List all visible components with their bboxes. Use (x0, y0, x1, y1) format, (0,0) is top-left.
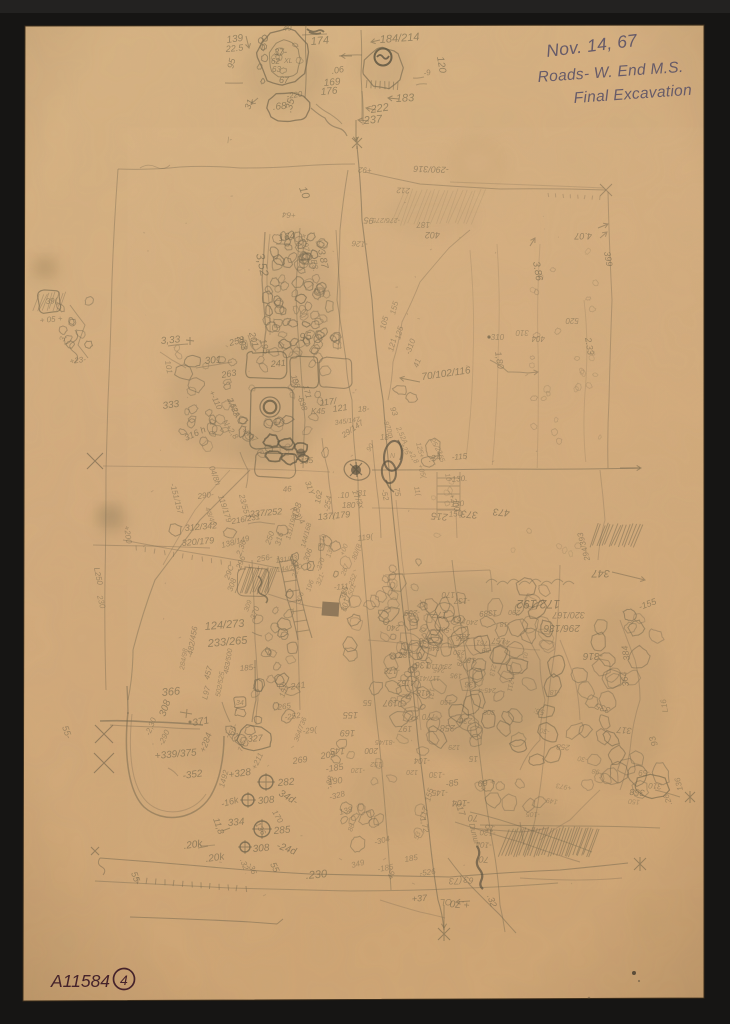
svg-text:317: 317 (615, 725, 632, 736)
svg-text:130: 130 (450, 499, 465, 509)
svg-text:197: 197 (398, 724, 412, 733)
svg-text:155: 155 (342, 710, 358, 720)
svg-text:187: 187 (462, 655, 476, 665)
svg-text:402: 402 (425, 230, 440, 240)
svg-text:XL: XL (283, 58, 293, 65)
svg-text:285: 285 (272, 825, 291, 838)
svg-text:-81/45: -81/45 (375, 738, 395, 745)
svg-text:+64: +64 (281, 210, 296, 220)
svg-text:135: 135 (299, 456, 314, 466)
svg-text:-290/316: -290/316 (413, 164, 449, 175)
svg-text:-104: -104 (413, 756, 430, 765)
svg-text:+37: +37 (411, 893, 428, 904)
svg-text:-126: -126 (351, 239, 368, 249)
svg-text:334: 334 (227, 817, 245, 829)
svg-text:63: 63 (272, 65, 281, 74)
svg-text:310: 310 (515, 328, 529, 337)
svg-text:-105: -105 (526, 810, 540, 817)
svg-text:63: 63 (463, 874, 475, 886)
svg-text:366: 366 (161, 685, 181, 699)
svg-text:-85: -85 (445, 777, 460, 789)
svg-text:55: 55 (363, 698, 372, 707)
svg-text:169: 169 (340, 728, 355, 738)
svg-text:-278: -278 (455, 652, 463, 667)
svg-text:245-4: 245-4 (478, 686, 497, 693)
svg-text:240: 240 (466, 618, 479, 625)
svg-text:245: 245 (433, 666, 446, 673)
svg-text:290: 290 (508, 608, 521, 615)
svg-text:373: 373 (460, 508, 478, 520)
svg-text:129: 129 (448, 743, 460, 750)
svg-text:-': -' (352, 388, 357, 397)
svg-text:(73: (73 (449, 876, 462, 886)
svg-text:.230: .230 (305, 868, 328, 882)
svg-text:18-: 18- (357, 404, 370, 414)
svg-text:170: 170 (441, 590, 455, 599)
svg-text:258: 258 (440, 723, 456, 733)
svg-text:174: 174 (310, 34, 329, 48)
svg-text:22.5: 22.5 (224, 42, 244, 54)
svg-text:172/192: 172/192 (516, 597, 560, 611)
svg-text:-120: -120 (351, 766, 365, 773)
svg-text:241: 241 (269, 358, 286, 369)
svg-text:A11584: A11584 (50, 971, 110, 991)
svg-text:308: 308 (252, 843, 270, 855)
svg-text:195: 195 (450, 671, 462, 679)
svg-text:282: 282 (276, 777, 295, 790)
svg-text:.06: .06 (331, 64, 345, 76)
svg-text:15: 15 (469, 754, 478, 763)
svg-text:K45: K45 (311, 407, 326, 416)
svg-text:67: 67 (279, 75, 290, 85)
svg-text:34: 34 (236, 700, 244, 707)
svg-text:37-: 37- (274, 47, 287, 57)
svg-text:120: 120 (406, 768, 418, 775)
svg-text:520: 520 (565, 316, 579, 325)
svg-text:308: 308 (257, 795, 275, 807)
svg-text:+92: +92 (357, 165, 372, 175)
svg-text:-: - (300, 831, 303, 840)
svg-text:473: 473 (492, 506, 510, 518)
svg-text:-130: -130 (428, 770, 445, 779)
svg-text:176: 176 (320, 86, 338, 98)
svg-text:4: 4 (120, 972, 128, 988)
svg-text:130.: 130. (451, 474, 467, 484)
svg-text:347: 347 (591, 567, 610, 579)
svg-text:46: 46 (282, 484, 292, 494)
svg-text:358: 358 (629, 787, 645, 798)
svg-text:.10: .10 (338, 491, 350, 500)
svg-text:320/167: 320/167 (551, 610, 585, 620)
svg-text:-120: -120 (479, 828, 496, 838)
svg-text:497: 497 (497, 638, 510, 645)
svg-text:185-: 185- (239, 663, 256, 673)
svg-text:121: 121 (332, 402, 348, 414)
svg-text:4.07: 4.07 (573, 231, 592, 241)
svg-text:200: 200 (364, 746, 379, 755)
svg-text:310: 310 (648, 781, 663, 791)
svg-text:215: 215 (430, 510, 449, 523)
svg-text:150: 150 (628, 797, 640, 805)
svg-text:18-: 18- (380, 433, 392, 442)
svg-text:-115: -115 (451, 452, 468, 462)
